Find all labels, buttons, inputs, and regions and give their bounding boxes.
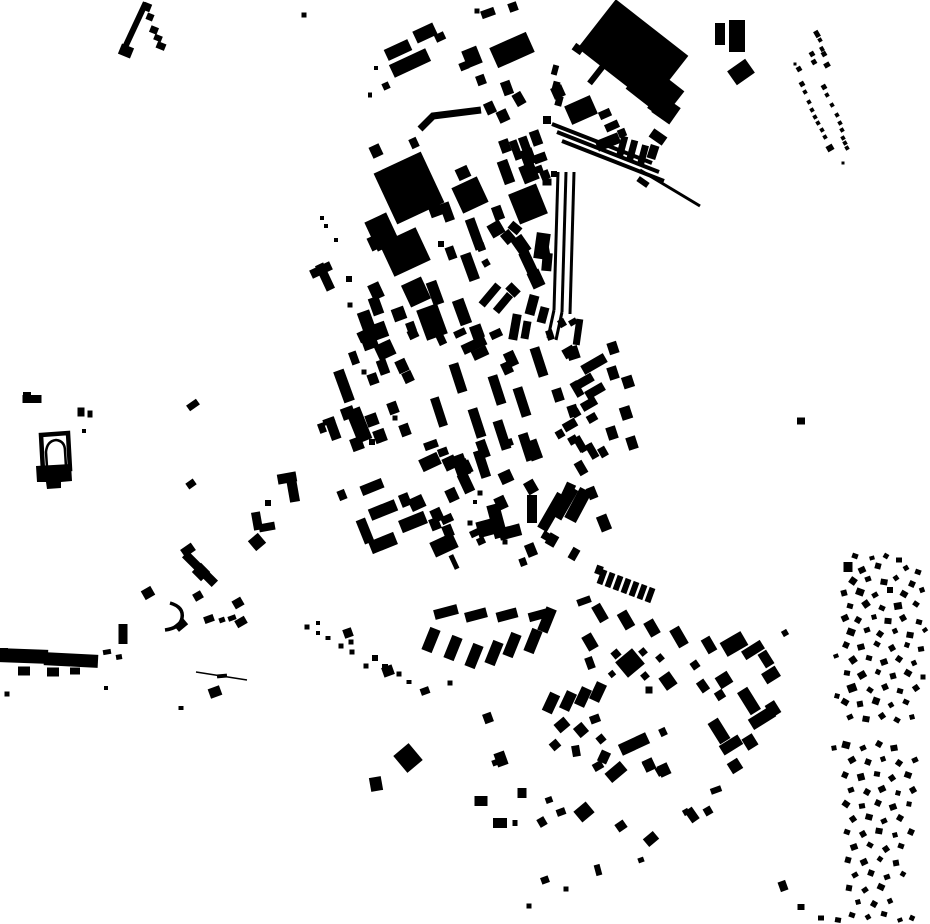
district-isolated-markers bbox=[797, 418, 805, 425]
building-footprint bbox=[149, 25, 159, 34]
building-footprint bbox=[914, 569, 921, 576]
building-footprint bbox=[356, 518, 375, 545]
building-footprint bbox=[594, 864, 603, 876]
building-footprint bbox=[336, 489, 347, 501]
building-footprint bbox=[574, 686, 592, 708]
building-footprint bbox=[899, 614, 907, 622]
building-footprint bbox=[880, 817, 888, 824]
building-footprint bbox=[874, 799, 882, 807]
building-footprint bbox=[511, 91, 526, 107]
building-footprint bbox=[464, 643, 483, 669]
building-footprint bbox=[596, 514, 612, 533]
building-footprint bbox=[890, 744, 898, 751]
building-footprint bbox=[339, 644, 344, 649]
building-footprint bbox=[871, 591, 879, 598]
building-footprint bbox=[859, 744, 867, 751]
building-footprint bbox=[475, 74, 487, 86]
building-footprint bbox=[888, 702, 895, 709]
building-footprint bbox=[880, 756, 886, 762]
building-footprint bbox=[865, 813, 873, 821]
district-west-quarter bbox=[0, 392, 300, 710]
building-footprint bbox=[78, 408, 85, 417]
building-footprint bbox=[895, 655, 903, 663]
building-footprint bbox=[70, 668, 80, 675]
building-footprint bbox=[812, 114, 817, 119]
building-footprint bbox=[530, 346, 549, 378]
siding-2-line bbox=[562, 172, 566, 312]
building-footprint bbox=[608, 670, 616, 678]
building-footprint bbox=[907, 828, 915, 836]
building-footprint bbox=[831, 745, 837, 751]
building-footprint bbox=[407, 494, 426, 512]
building-footprint bbox=[507, 1, 519, 13]
building-footprint bbox=[629, 581, 640, 597]
building-footprint bbox=[334, 238, 338, 242]
building-footprint bbox=[844, 670, 851, 676]
building-footprint bbox=[476, 536, 486, 546]
building-footprint bbox=[391, 306, 408, 323]
building-footprint bbox=[234, 616, 248, 628]
building-footprint bbox=[895, 790, 901, 796]
building-footprint bbox=[813, 30, 821, 39]
building-footprint bbox=[847, 787, 854, 794]
building-footprint bbox=[851, 553, 858, 560]
building-footprint bbox=[649, 128, 668, 145]
building-footprint bbox=[641, 757, 656, 773]
building-footprint bbox=[525, 294, 540, 316]
building-footprint bbox=[518, 788, 527, 798]
building-footprint bbox=[218, 617, 225, 624]
building-footprint bbox=[610, 648, 621, 659]
rail-stripe-4-line bbox=[640, 170, 700, 206]
building-footprint bbox=[874, 562, 881, 569]
building-footprint bbox=[919, 587, 925, 593]
building-footprint bbox=[829, 102, 834, 107]
building-footprint bbox=[349, 640, 354, 645]
building-footprint bbox=[468, 407, 487, 439]
building-footprint bbox=[643, 618, 661, 637]
building-footprint bbox=[625, 435, 639, 450]
building-footprint bbox=[524, 542, 538, 558]
building-footprint bbox=[568, 547, 581, 561]
building-footprint bbox=[320, 216, 324, 220]
building-footprint bbox=[900, 871, 907, 878]
building-footprint bbox=[589, 681, 607, 703]
building-footprint bbox=[480, 7, 496, 19]
building-footprint bbox=[475, 796, 488, 806]
building-footprint bbox=[824, 92, 829, 97]
building-footprint bbox=[911, 660, 918, 667]
building-footprint bbox=[922, 627, 928, 633]
building-footprint bbox=[918, 646, 925, 652]
building-footprint bbox=[551, 64, 559, 75]
building-footprint bbox=[119, 624, 128, 644]
building-footprint bbox=[880, 578, 888, 585]
building-footprint bbox=[359, 478, 384, 496]
building-footprint bbox=[445, 245, 458, 260]
building-footprint bbox=[857, 773, 866, 782]
building-footprint bbox=[889, 672, 896, 679]
building-footprint bbox=[231, 597, 244, 610]
building-footprint bbox=[912, 684, 920, 692]
building-footprint bbox=[495, 108, 510, 124]
building-footprint bbox=[646, 687, 653, 694]
building-footprint bbox=[904, 642, 910, 648]
building-footprint bbox=[523, 479, 539, 496]
building-footprint bbox=[855, 899, 861, 905]
building-footprint bbox=[537, 306, 550, 324]
building-footprint bbox=[863, 627, 870, 634]
building-footprint bbox=[848, 576, 858, 586]
building-footprint bbox=[904, 771, 913, 779]
figure-ground-map bbox=[0, 0, 930, 924]
building-footprint bbox=[658, 671, 677, 691]
building-footprint bbox=[806, 99, 811, 104]
building-footprint bbox=[368, 499, 398, 521]
building-footprint bbox=[484, 640, 503, 666]
building-footprint bbox=[326, 636, 331, 640]
building-footprint bbox=[882, 845, 890, 853]
building-footprint bbox=[483, 100, 497, 115]
building-footprint bbox=[857, 670, 867, 680]
building-footprint bbox=[457, 472, 475, 495]
building-footprint bbox=[729, 20, 745, 52]
siding-3-line bbox=[570, 172, 574, 314]
building-footprint bbox=[555, 429, 566, 440]
building-footprint bbox=[412, 22, 437, 43]
building-footprint bbox=[398, 511, 428, 533]
building-footprint bbox=[875, 827, 883, 834]
building-footprint bbox=[842, 162, 845, 165]
building-footprint bbox=[703, 806, 714, 817]
building-footprint bbox=[837, 120, 842, 125]
building-footprint bbox=[715, 671, 734, 689]
building-footprint bbox=[799, 81, 806, 88]
building-footprint bbox=[302, 13, 307, 18]
building-footprint bbox=[342, 627, 354, 639]
building-footprint bbox=[584, 382, 606, 400]
building-footprint bbox=[508, 184, 548, 225]
building-footprint bbox=[464, 607, 488, 622]
building-footprint bbox=[864, 758, 872, 766]
building-footprint bbox=[878, 604, 886, 611]
building-footprint bbox=[876, 630, 884, 638]
building-footprint bbox=[846, 603, 853, 609]
building-footprint bbox=[892, 628, 899, 635]
building-footprint bbox=[468, 521, 473, 526]
building-footprint bbox=[809, 107, 814, 112]
district-southeast-allotments bbox=[831, 553, 928, 923]
building-footprint bbox=[846, 885, 853, 892]
building-footprint bbox=[851, 871, 859, 878]
building-footprint bbox=[867, 869, 875, 877]
building-footprint bbox=[429, 532, 458, 557]
building-footprint bbox=[888, 644, 896, 652]
building-footprint bbox=[921, 675, 926, 680]
building-footprint bbox=[265, 500, 271, 506]
building-footprint bbox=[865, 655, 872, 661]
building-footprint bbox=[857, 701, 864, 708]
building-footprint bbox=[503, 540, 508, 545]
building-footprint bbox=[875, 669, 882, 676]
building-footprint bbox=[47, 668, 59, 677]
building-footprint bbox=[393, 416, 398, 421]
building-footprint bbox=[714, 689, 726, 701]
district-northwest-hamlet bbox=[118, 1, 307, 58]
building-footprint bbox=[841, 741, 851, 750]
building-footprint bbox=[372, 655, 378, 661]
building-footprint bbox=[875, 740, 883, 748]
building-footprint bbox=[153, 34, 163, 43]
building-footprint bbox=[192, 590, 204, 601]
building-footprint bbox=[397, 672, 402, 677]
building-footprint bbox=[82, 429, 86, 433]
building-footprint bbox=[559, 690, 577, 712]
building-footprint bbox=[595, 733, 606, 744]
building-footprint bbox=[899, 590, 908, 599]
building-footprint bbox=[802, 89, 807, 94]
building-footprint bbox=[869, 555, 875, 560]
building-footprint bbox=[811, 59, 818, 66]
building-footprint bbox=[840, 135, 845, 140]
building-footprint bbox=[896, 558, 902, 563]
district-southeast-estates bbox=[542, 565, 789, 778]
building-footprint bbox=[606, 365, 620, 380]
building-footprint bbox=[564, 95, 598, 125]
building-footprint bbox=[895, 759, 903, 767]
building-footprint bbox=[449, 554, 460, 570]
building-footprint bbox=[909, 714, 915, 720]
building-footprint bbox=[586, 412, 599, 424]
building-footprint bbox=[606, 341, 619, 356]
building-footprint bbox=[897, 843, 904, 850]
building-footprint bbox=[863, 788, 871, 796]
building-footprint bbox=[893, 575, 900, 582]
building-footprint bbox=[880, 911, 887, 917]
building-footprint bbox=[841, 800, 850, 809]
building-footprint bbox=[640, 671, 650, 681]
building-footprint bbox=[903, 669, 912, 678]
building-footprint bbox=[0, 648, 8, 660]
building-footprint bbox=[502, 632, 521, 658]
building-footprint bbox=[423, 439, 439, 451]
building-footprint bbox=[156, 41, 167, 51]
building-footprint bbox=[564, 887, 569, 892]
building-footprint bbox=[903, 565, 910, 572]
building-footprint bbox=[825, 144, 834, 153]
building-footprint bbox=[877, 856, 884, 863]
building-footprint bbox=[848, 912, 855, 919]
building-footprint bbox=[316, 621, 320, 625]
building-footprint bbox=[451, 176, 488, 213]
building-footprint bbox=[369, 776, 383, 792]
building-footprint bbox=[488, 374, 507, 406]
building-footprint bbox=[545, 796, 554, 804]
building-footprint bbox=[817, 37, 822, 42]
building-footprint bbox=[842, 140, 847, 145]
building-footprint bbox=[536, 816, 547, 828]
building-footprint bbox=[248, 533, 266, 551]
building-footprint bbox=[883, 874, 890, 881]
building-footprint bbox=[481, 258, 491, 268]
building-footprint bbox=[912, 600, 920, 608]
building-footprint bbox=[489, 328, 503, 340]
building-footprint bbox=[839, 127, 844, 132]
building-footprint bbox=[840, 589, 847, 596]
building-footprint bbox=[809, 51, 816, 58]
building-footprint bbox=[872, 697, 881, 706]
building-footprint bbox=[815, 120, 820, 125]
building-footprint bbox=[643, 831, 659, 847]
building-footprint bbox=[597, 446, 609, 459]
building-footprint bbox=[701, 636, 718, 655]
building-footprint bbox=[758, 650, 775, 669]
building-footprint bbox=[478, 491, 483, 496]
district-central-grid bbox=[317, 317, 639, 569]
building-footprint bbox=[418, 452, 442, 472]
building-footprint bbox=[909, 786, 917, 794]
building-footprint bbox=[364, 664, 369, 669]
building-footprint bbox=[897, 917, 903, 922]
building-footprint bbox=[324, 224, 328, 228]
building-footprint bbox=[508, 313, 521, 340]
building-footprint bbox=[408, 137, 419, 149]
building-footprint bbox=[689, 659, 700, 670]
building-footprint bbox=[460, 252, 480, 282]
building-footprint bbox=[865, 914, 872, 921]
building-footprint bbox=[878, 785, 887, 793]
road-bend bbox=[420, 110, 481, 129]
building-footprint bbox=[227, 614, 236, 621]
building-footprint bbox=[781, 629, 789, 637]
building-footprint bbox=[574, 460, 589, 477]
building-footprint bbox=[871, 614, 877, 620]
building-footprint bbox=[844, 856, 851, 863]
building-footprint bbox=[346, 276, 352, 282]
building-footprint bbox=[844, 145, 849, 150]
building-footprint bbox=[833, 653, 839, 658]
building-footprint bbox=[878, 712, 886, 720]
building-footprint bbox=[398, 423, 412, 438]
building-footprint bbox=[562, 418, 579, 433]
building-footprint bbox=[846, 713, 854, 720]
building-footprint bbox=[581, 632, 599, 651]
building-footprint bbox=[604, 761, 627, 783]
building-footprint bbox=[658, 727, 668, 737]
building-footprint bbox=[348, 351, 360, 366]
building-footprint bbox=[104, 686, 108, 690]
building-footprint bbox=[761, 666, 781, 685]
building-footprint bbox=[551, 387, 565, 402]
building-footprint bbox=[821, 84, 828, 91]
building-footprint bbox=[407, 680, 412, 684]
building-footprint bbox=[551, 171, 557, 177]
building-footprint bbox=[822, 134, 827, 139]
building-footprint bbox=[421, 627, 440, 653]
building-footprint bbox=[797, 418, 805, 425]
building-footprint bbox=[573, 801, 594, 822]
building-footprint bbox=[103, 649, 112, 655]
map-viewport bbox=[0, 0, 930, 924]
building-footprint bbox=[527, 495, 537, 523]
building-footprint bbox=[438, 241, 444, 247]
building-footprint bbox=[540, 875, 550, 884]
building-footprint bbox=[840, 698, 849, 707]
building-footprint bbox=[598, 108, 612, 120]
building-footprint bbox=[847, 756, 856, 765]
building-footprint bbox=[645, 587, 656, 603]
building-footprint bbox=[513, 386, 532, 418]
building-footprint bbox=[909, 915, 916, 922]
district-northeast-blocks bbox=[715, 20, 755, 85]
building-footprint bbox=[870, 900, 878, 908]
building-footprint bbox=[368, 93, 372, 98]
building-footprint bbox=[453, 327, 467, 338]
building-footprint bbox=[883, 553, 890, 560]
building-footprint bbox=[362, 370, 367, 375]
building-footprint bbox=[881, 683, 889, 691]
building-footprint bbox=[498, 138, 512, 154]
building-footprint bbox=[896, 814, 904, 822]
building-footprint bbox=[741, 733, 758, 750]
building-footprint bbox=[846, 627, 856, 636]
building-footprint bbox=[844, 562, 853, 572]
building-footprint bbox=[893, 860, 900, 867]
building-footprint bbox=[584, 656, 596, 670]
building-footprint bbox=[621, 578, 632, 594]
building-footprint bbox=[887, 587, 893, 593]
building-footprint bbox=[614, 819, 627, 832]
building-footprint bbox=[888, 774, 896, 782]
field-boundary-line bbox=[196, 672, 247, 680]
building-footprint bbox=[386, 401, 400, 416]
building-footprint bbox=[892, 832, 898, 838]
building-footprint bbox=[420, 686, 431, 696]
building-footprint bbox=[88, 411, 93, 418]
building-footprint bbox=[203, 614, 215, 624]
building-footprint bbox=[350, 650, 355, 655]
building-footprint bbox=[316, 631, 320, 635]
building-footprint bbox=[794, 63, 797, 66]
building-footprint bbox=[571, 745, 581, 757]
building-footprint bbox=[518, 162, 540, 185]
building-footprint bbox=[473, 500, 477, 504]
building-footprint bbox=[818, 916, 824, 921]
building-footprint bbox=[573, 722, 589, 738]
building-footprint bbox=[617, 609, 636, 630]
building-footprint bbox=[874, 771, 881, 777]
building-footprint bbox=[896, 688, 903, 694]
building-footprint bbox=[455, 165, 472, 181]
building-footprint bbox=[116, 654, 123, 660]
building-footprint bbox=[727, 758, 744, 775]
building-footprint bbox=[401, 276, 431, 307]
building-footprint bbox=[498, 469, 515, 485]
building-footprint bbox=[669, 626, 689, 649]
building-footprint bbox=[849, 815, 857, 823]
building-footprint bbox=[866, 841, 874, 848]
building-footprint bbox=[118, 43, 134, 58]
building-footprint bbox=[906, 631, 914, 638]
building-footprint bbox=[482, 712, 494, 724]
building-footprint bbox=[513, 820, 518, 826]
building-footprint bbox=[778, 880, 789, 892]
building-footprint bbox=[857, 643, 865, 651]
building-footprint bbox=[858, 566, 867, 574]
building-footprint bbox=[621, 375, 635, 390]
building-footprint bbox=[834, 693, 840, 699]
building-footprint bbox=[908, 580, 916, 588]
